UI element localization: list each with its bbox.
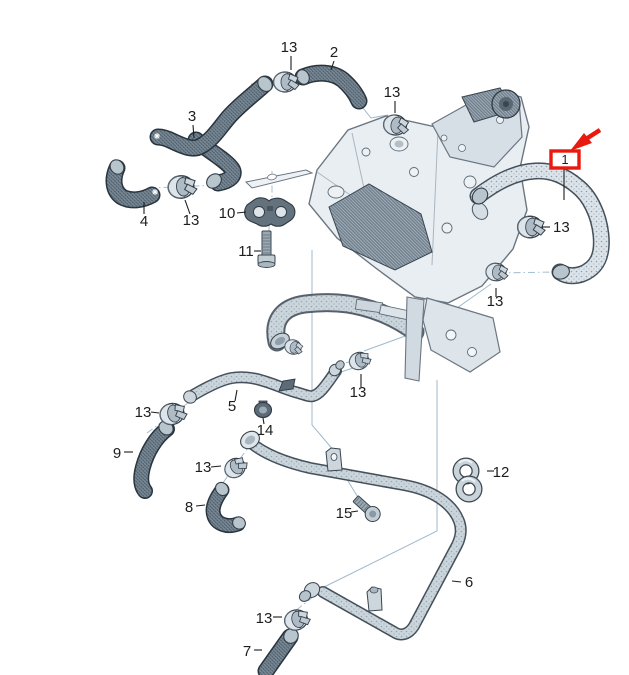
hose-7	[266, 626, 301, 671]
pipe-5	[181, 359, 346, 406]
highlight-arrow	[570, 130, 600, 151]
part-12-retainer	[457, 460, 479, 498]
callout-14[interactable]: 14	[257, 422, 274, 439]
clamp-13-e	[517, 216, 545, 238]
engine-support	[405, 297, 424, 381]
callout-1[interactable]: 1	[561, 152, 568, 167]
part-14-grommet	[255, 401, 272, 418]
part-11-bolt	[258, 231, 275, 268]
callout-13-hose7[interactable]: 13	[256, 610, 273, 627]
callout-3[interactable]: 3	[188, 108, 196, 125]
callout-11[interactable]: 11	[238, 243, 254, 260]
callout-15[interactable]: 15	[336, 505, 353, 522]
callout-13-hose9[interactable]: 13	[135, 404, 152, 421]
callout-4[interactable]: 4	[140, 213, 148, 230]
part-10-bracket	[245, 198, 295, 226]
callout-13-hose1[interactable]: 13	[553, 219, 570, 236]
callout-9[interactable]: 9	[113, 445, 121, 462]
callout-13-hose4[interactable]: 13	[183, 212, 200, 229]
clamp-13-c	[167, 174, 198, 199]
callout-13-engine[interactable]: 13	[384, 84, 401, 101]
callout-7[interactable]: 7	[243, 643, 251, 660]
pipe-6	[237, 428, 461, 635]
stay-rod	[246, 170, 312, 188]
hose-2	[294, 68, 359, 101]
hose-3	[154, 74, 275, 191]
engine-charge-pipe	[268, 299, 415, 356]
callout-13-top[interactable]: 13	[281, 39, 298, 56]
callout-13-below-engine[interactable]: 13	[487, 293, 504, 310]
hose-4	[107, 157, 158, 200]
callout-13-pipe5[interactable]: 13	[350, 384, 367, 401]
callout-2[interactable]: 2	[330, 44, 338, 61]
part-15-bolt	[351, 493, 384, 525]
callout-6[interactable]: 6	[465, 574, 473, 591]
parts-diagram-page: 1 13 2 3 13 4 13 10 11	[0, 0, 629, 675]
pipe-5-tab	[279, 379, 295, 391]
clamp-13-g	[282, 607, 312, 633]
callout-10[interactable]: 10	[219, 205, 236, 222]
callout-5[interactable]: 5	[228, 398, 236, 415]
clamp-13-hose8	[221, 453, 251, 482]
callout-13-hose8[interactable]: 13	[195, 459, 212, 476]
callout-12[interactable]: 12	[493, 464, 510, 481]
hose-8	[213, 480, 248, 532]
hose-9	[141, 418, 176, 491]
diagram-canvas: 1 13 2 3 13 4 13 10 11	[0, 0, 629, 675]
callout-8[interactable]: 8	[185, 499, 193, 516]
